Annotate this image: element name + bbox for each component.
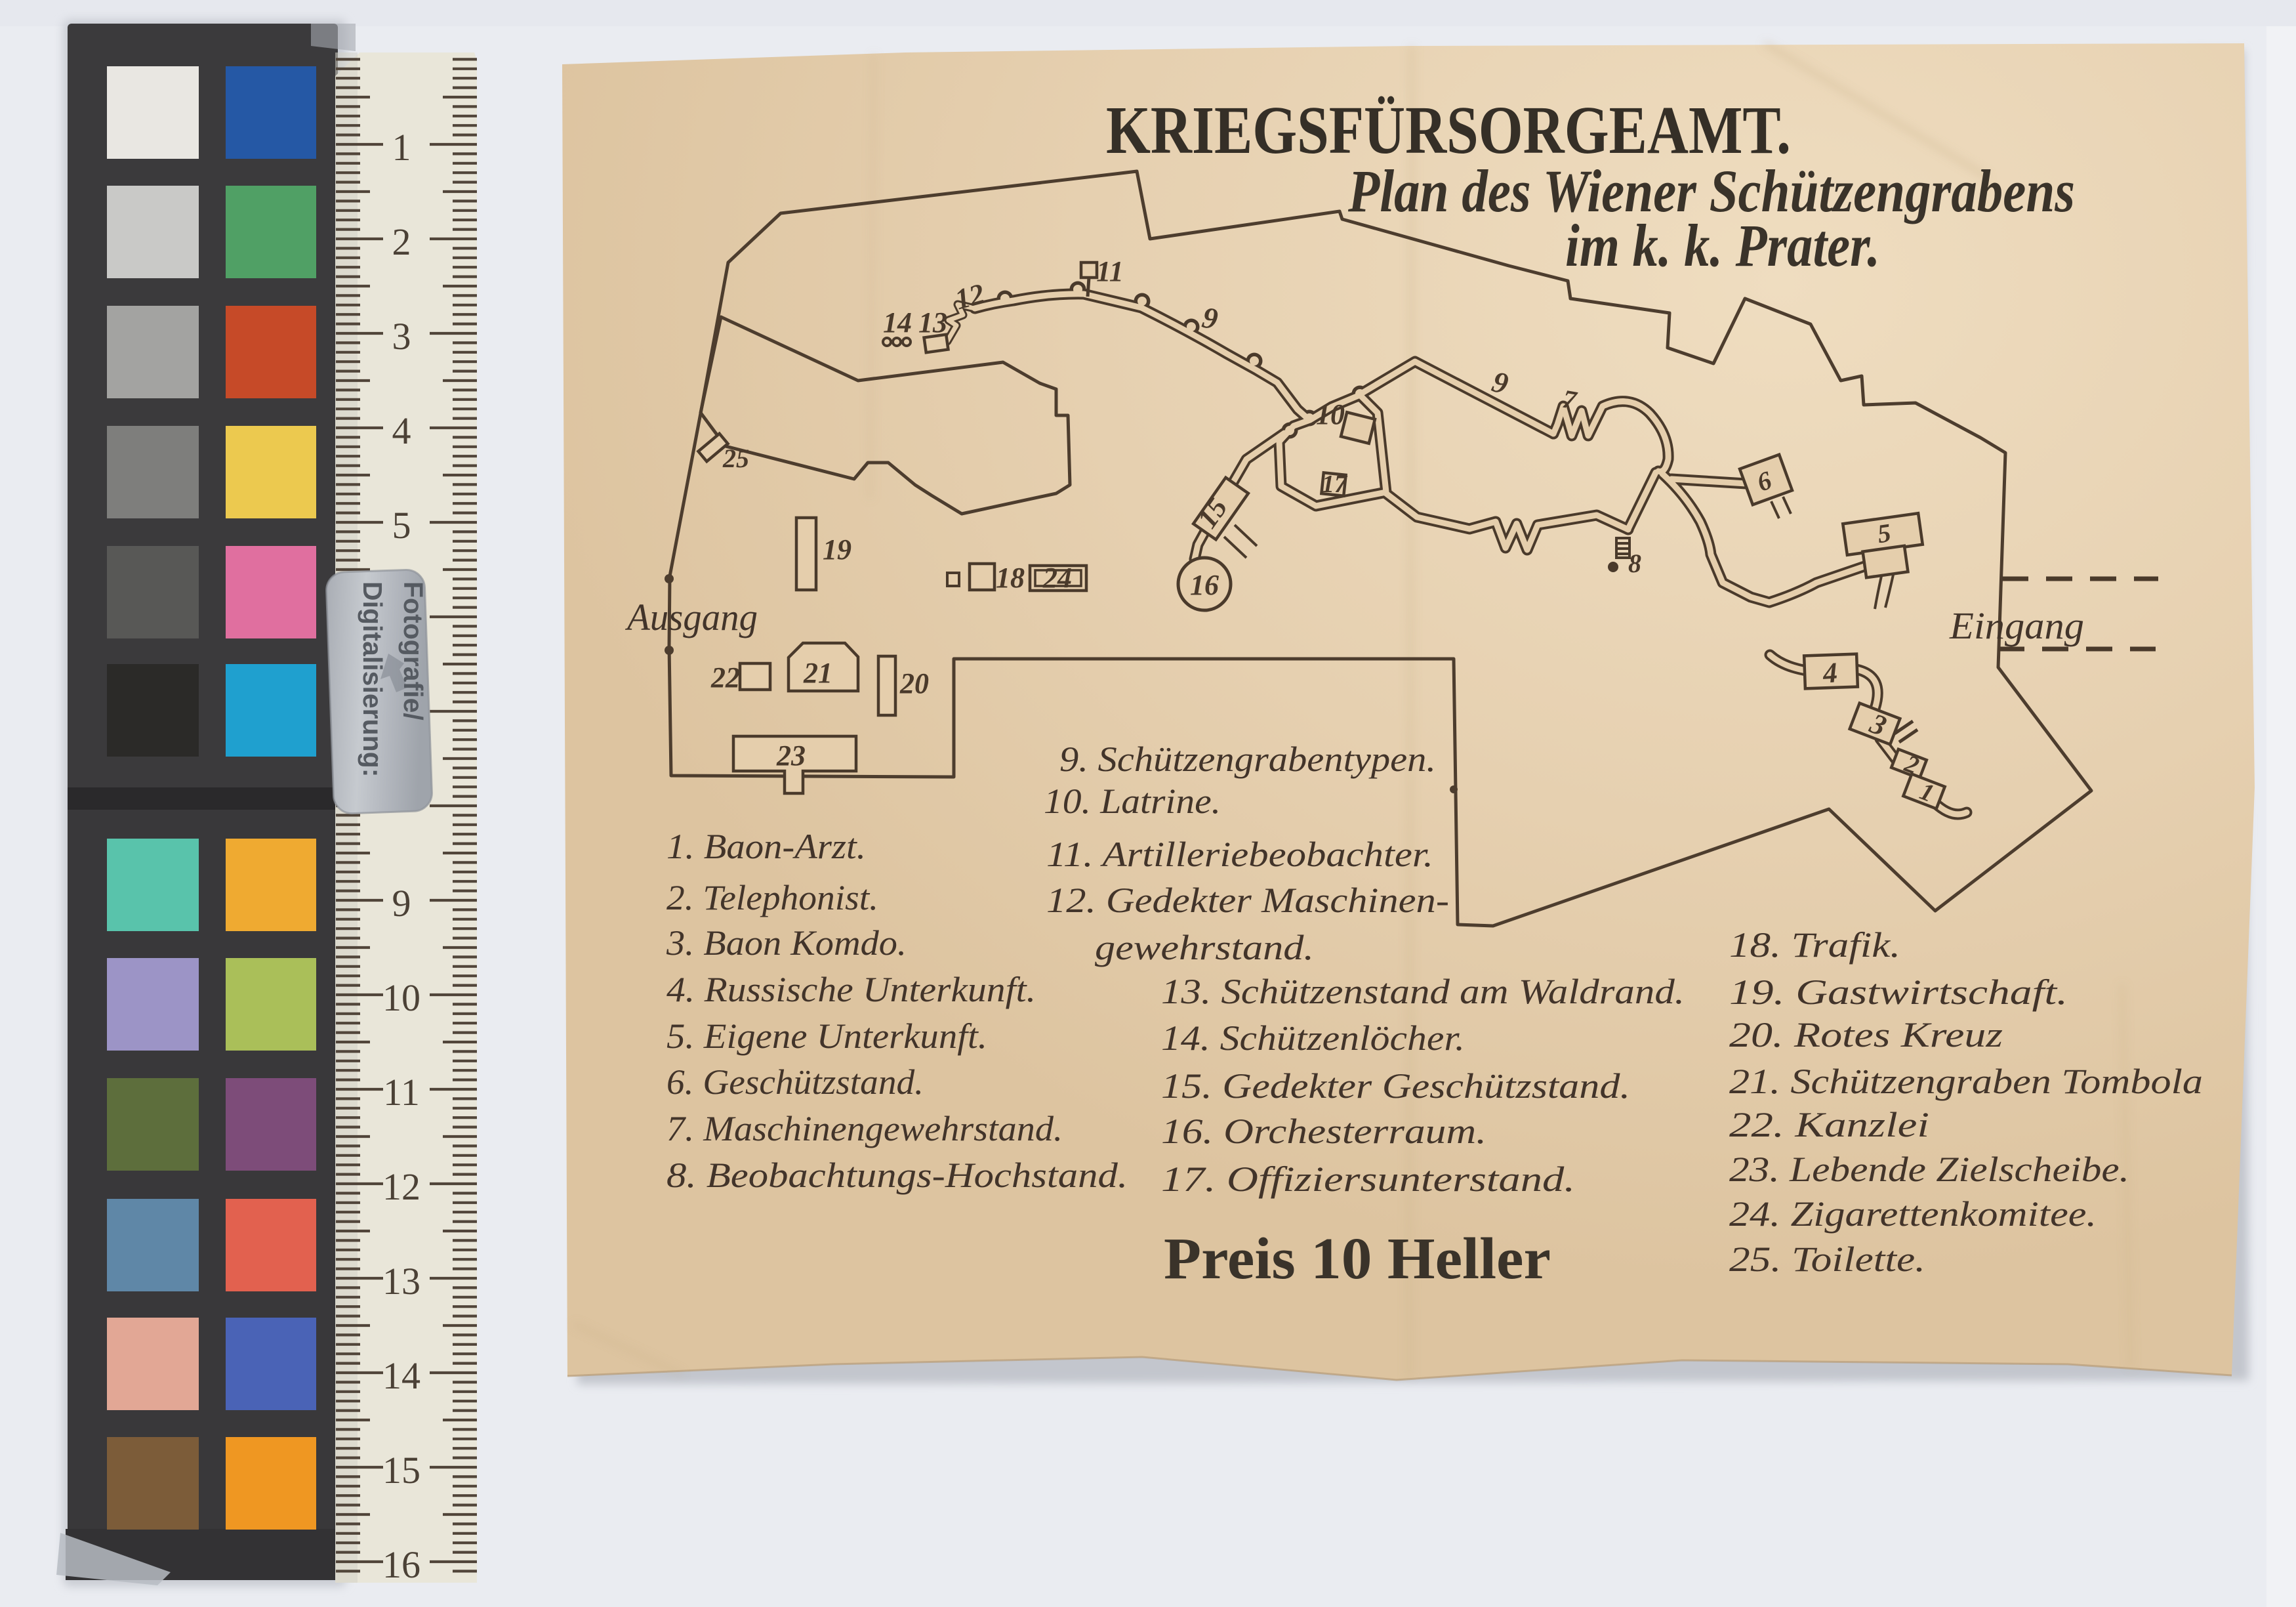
svg-text:17: 17 [1322, 470, 1348, 498]
svg-text:9. Schützengrabentypen.: 9. Schützengrabentypen. [1059, 740, 1436, 779]
svg-text:gewehrstand.: gewehrstand. [1095, 928, 1314, 967]
svg-text:10: 10 [1316, 398, 1345, 430]
svg-text:13: 13 [918, 306, 947, 339]
svg-text:4: 4 [392, 409, 411, 452]
svg-text:14: 14 [382, 1354, 420, 1397]
svg-text:18. Trafik.: 18. Trafik. [1729, 925, 1900, 965]
svg-text:12. Gedekter Maschinen-: 12. Gedekter Maschinen- [1046, 881, 1449, 920]
svg-text:5: 5 [392, 504, 411, 547]
svg-text:21: 21 [803, 657, 832, 689]
svg-text:24. Zigarettenkomitee.: 24. Zigarettenkomitee. [1729, 1194, 2097, 1234]
svg-text:8: 8 [1628, 549, 1641, 578]
svg-text:KRIEGSFÜRSORGEAMT.: KRIEGSFÜRSORGEAMT. [1106, 93, 1791, 168]
svg-text:Eingang: Eingang [1949, 604, 2084, 647]
svg-text:Fotografie/: Fotografie/ [398, 581, 428, 720]
svg-text:3: 3 [392, 315, 411, 358]
svg-text:10: 10 [382, 976, 420, 1019]
svg-text:14. Schützenlöcher.: 14. Schützenlöcher. [1161, 1018, 1465, 1058]
svg-text:21. Schützengraben Tombola: 21. Schützengraben Tombola [1729, 1062, 2203, 1101]
svg-text:22. Kanzlei: 22. Kanzlei [1729, 1105, 1929, 1144]
svg-text:11: 11 [1096, 255, 1124, 287]
svg-text:14: 14 [883, 306, 912, 339]
svg-text:3. Baon Komdo.: 3. Baon Komdo. [666, 923, 907, 963]
svg-text:13. Schützenstand am Waldrand.: 13. Schützenstand am Waldrand. [1161, 972, 1685, 1011]
svg-text:11. Artilleriebeobachter.: 11. Artilleriebeobachter. [1046, 835, 1433, 874]
svg-text:2: 2 [392, 220, 411, 263]
svg-text:20. Rotes Kreuz: 20. Rotes Kreuz [1729, 1015, 2003, 1054]
svg-text:19: 19 [823, 533, 851, 566]
svg-text:16: 16 [382, 1543, 420, 1586]
svg-text:15: 15 [382, 1449, 420, 1492]
svg-text:im k. k. Prater.: im k. k. Prater. [1565, 212, 1880, 279]
svg-text:6. Geschützstand.: 6. Geschützstand. [666, 1062, 924, 1102]
svg-text:11: 11 [383, 1071, 420, 1114]
svg-text:4. Russische Unterkunft.: 4. Russische Unterkunft. [666, 970, 1036, 1009]
svg-text:Ausgang: Ausgang [625, 596, 758, 638]
svg-text:20: 20 [899, 667, 929, 699]
svg-text:4: 4 [1821, 656, 1838, 689]
svg-text:19. Gastwirtschaft.: 19. Gastwirtschaft. [1729, 972, 2068, 1012]
svg-text:10. Latrine.: 10. Latrine. [1044, 782, 1221, 821]
svg-text:23. Lebende Zielscheibe.: 23. Lebende Zielscheibe. [1729, 1150, 2129, 1189]
svg-text:5. Eigene Unterkunft.: 5. Eigene Unterkunft. [666, 1016, 987, 1056]
svg-text:13: 13 [382, 1260, 420, 1303]
svg-text:16: 16 [1190, 569, 1219, 601]
svg-text:25. Toilette.: 25. Toilette. [1729, 1240, 1925, 1279]
svg-text:18: 18 [996, 562, 1025, 594]
svg-text:17. Offiziersunterstand.: 17. Offiziersunterstand. [1161, 1159, 1575, 1199]
svg-text:1. Baon-Arzt.: 1. Baon-Arzt. [666, 827, 866, 866]
svg-text:Digitalisierung:: Digitalisierung: [358, 581, 388, 777]
svg-text:15. Gedekter Geschützstand.: 15. Gedekter Geschützstand. [1161, 1066, 1630, 1106]
svg-text:Preis 10 Heller: Preis 10 Heller [1164, 1226, 1551, 1291]
svg-text:24: 24 [1042, 562, 1072, 594]
svg-text:12: 12 [382, 1165, 420, 1208]
svg-text:9: 9 [392, 882, 411, 925]
svg-text:25: 25 [722, 444, 749, 473]
svg-text:8. Beobachtungs-Hochstand.: 8. Beobachtungs-Hochstand. [666, 1156, 1128, 1195]
svg-text:7. Maschinengewehrstand.: 7. Maschinengewehrstand. [666, 1109, 1063, 1148]
svg-text:23: 23 [776, 740, 806, 772]
svg-text:22: 22 [710, 661, 740, 694]
svg-text:1: 1 [392, 126, 411, 169]
svg-text:16. Orchesterraum.: 16. Orchesterraum. [1161, 1112, 1486, 1151]
svg-text:2. Telephonist.: 2. Telephonist. [666, 878, 878, 917]
